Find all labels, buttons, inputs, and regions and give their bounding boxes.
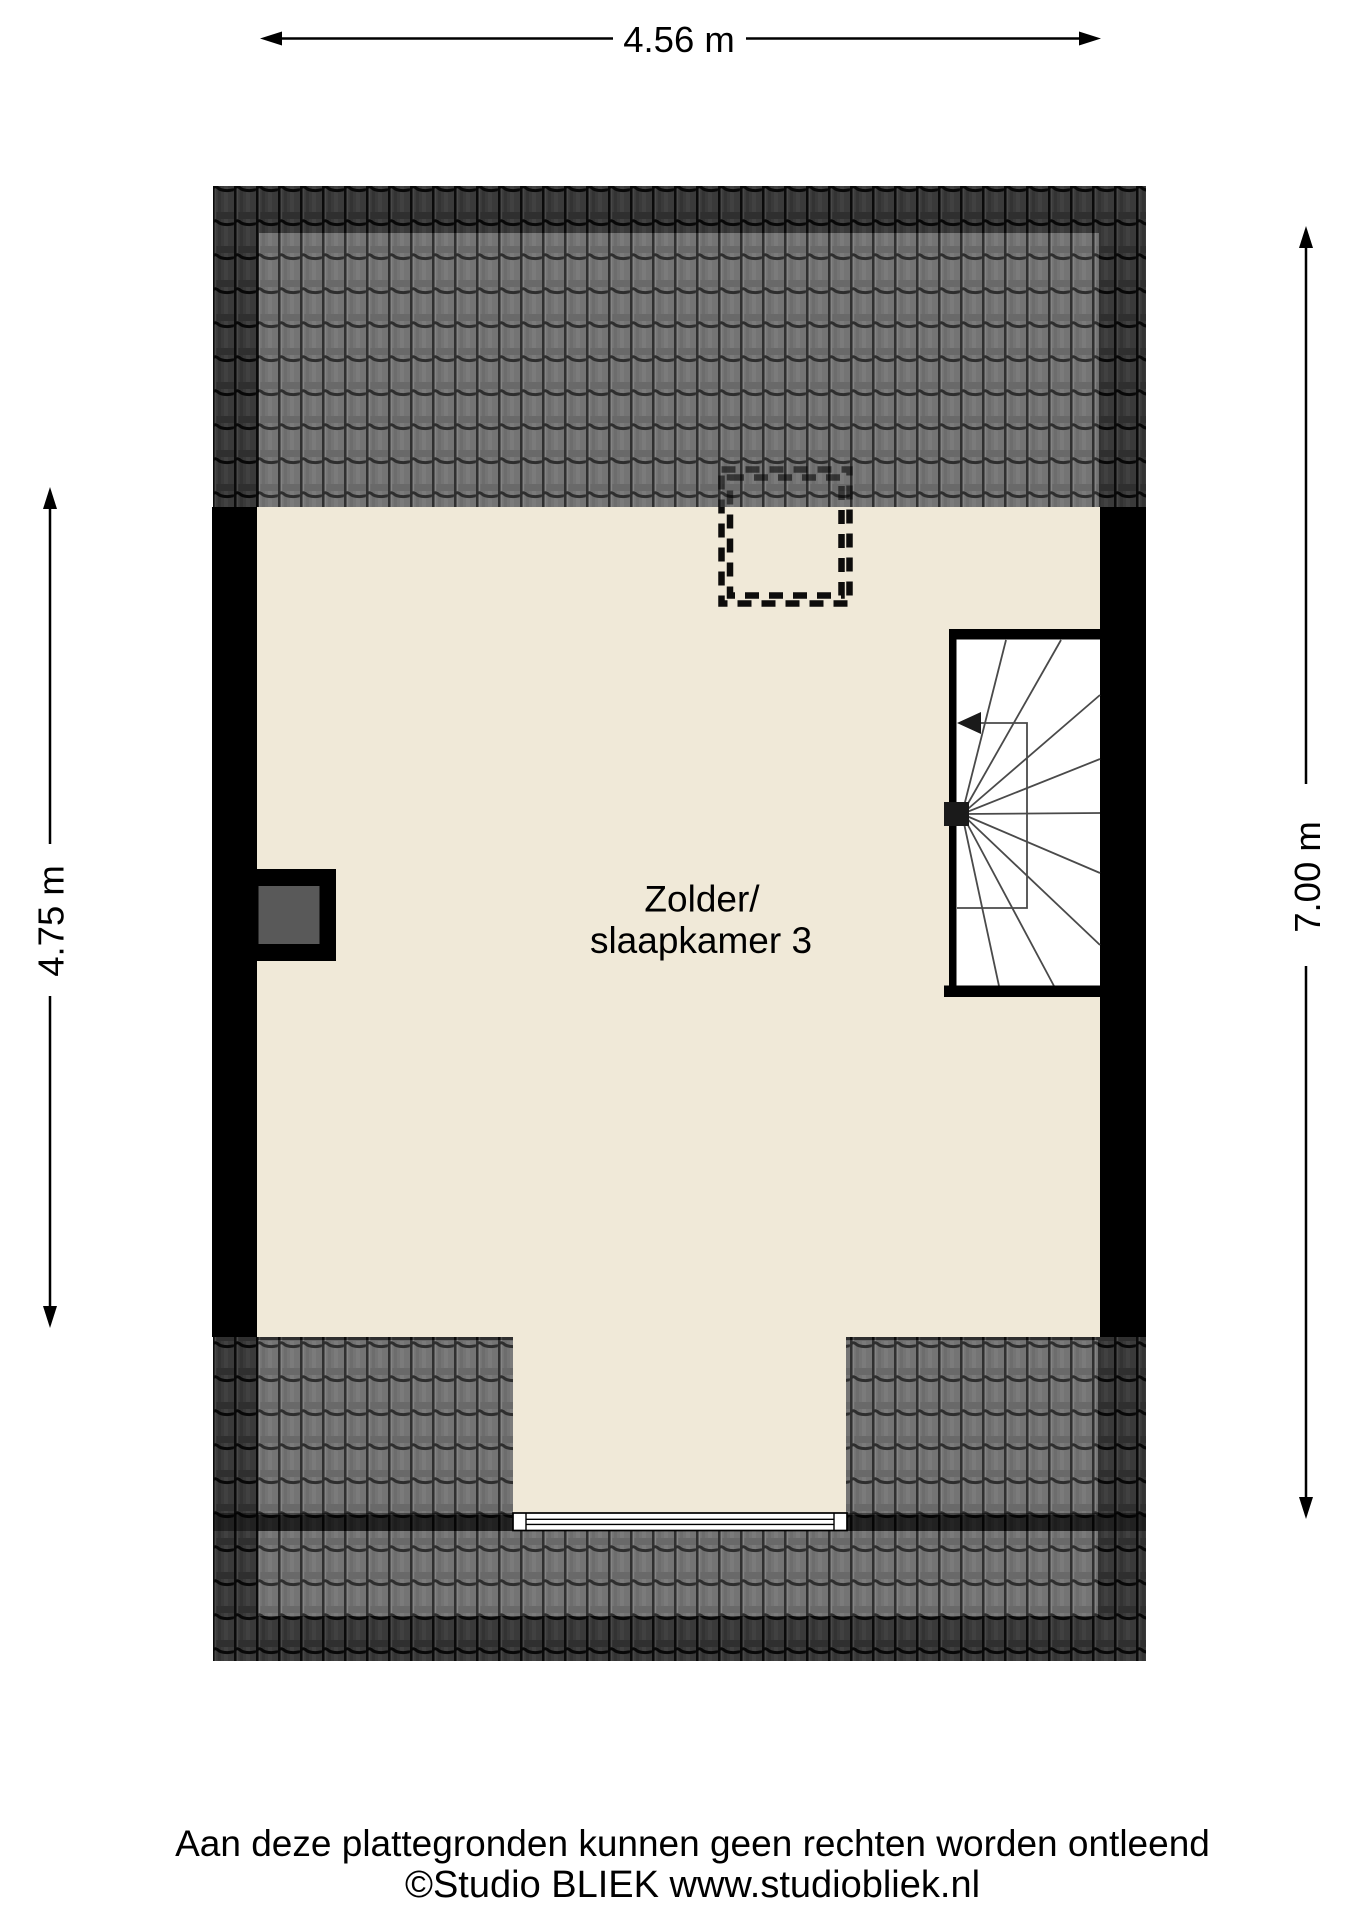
svg-text:7.00 m: 7.00 m — [1287, 821, 1328, 933]
svg-text:Zolder/: Zolder/ — [644, 879, 760, 920]
svg-text:©Studio BLIEK www.studiobliek.: ©Studio BLIEK www.studiobliek.nl — [405, 1864, 980, 1906]
svg-text:slaapkamer 3: slaapkamer 3 — [590, 920, 812, 961]
svg-text:Aan deze plattegronden kunnen: Aan deze plattegronden kunnen geen recht… — [175, 1823, 1210, 1864]
svg-text:4.75 m: 4.75 m — [31, 865, 72, 977]
svg-text:4.56 m: 4.56 m — [623, 19, 735, 60]
